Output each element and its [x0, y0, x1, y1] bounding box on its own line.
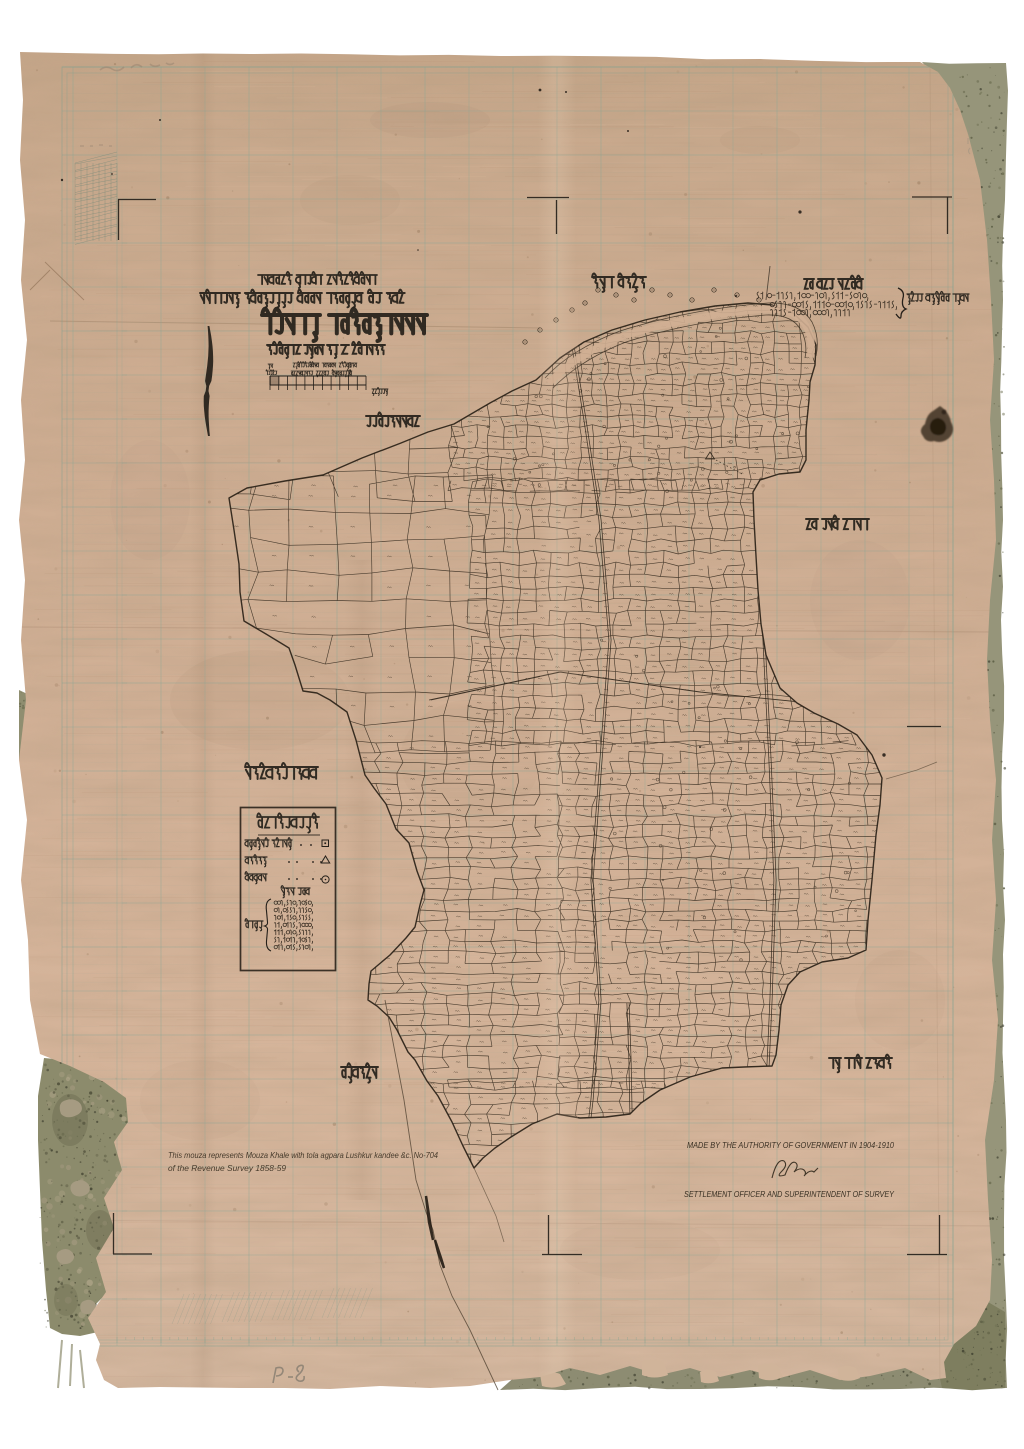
svg-text:SETTLEMENT OFFICER AND SUPERIN: SETTLEMENT OFFICER AND SUPERINTENDENT OF… [684, 1189, 895, 1199]
svg-text:This mouza represents Mouza K: This mouza represents Mouza Khale with t… [168, 1151, 438, 1160]
svg-text:of the Revenue Survey 1858-59: of the Revenue Survey 1858-59 [168, 1164, 286, 1173]
svg-text:MADE BY THE AUTHORITY OF GOVER: MADE BY THE AUTHORITY OF GOVERNMENT IN 1… [687, 1140, 894, 1150]
